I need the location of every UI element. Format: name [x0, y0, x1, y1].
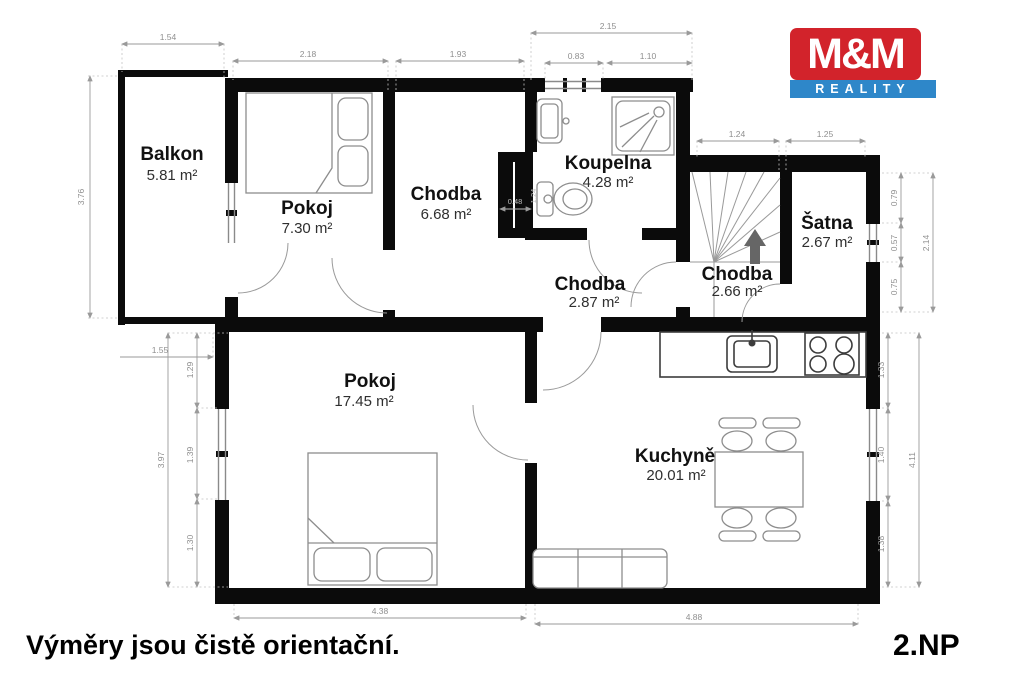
dim-kuchyne-width: 4.88 [686, 612, 703, 622]
dim-pokoj2-h3: 1.30 [185, 534, 195, 551]
room-name-chodba1: Chodba [411, 184, 482, 205]
dim-koupelna-total-width: 2.15 [600, 21, 617, 31]
room-area-koupelna: 4.28 m² [583, 174, 634, 191]
bed-small-icon [246, 93, 372, 193]
dim-satna-h2: 0.57 [889, 234, 899, 251]
dim-satna-total-height: 2.14 [921, 234, 931, 251]
room-area-satna: 2.67 m² [802, 234, 853, 251]
room-name-koupelna: Koupelna [565, 153, 652, 174]
sofa-icon [533, 549, 667, 588]
bathroom-sink-icon [537, 99, 569, 143]
room-name-balkon: Balkon [140, 144, 203, 165]
kitchen-counter-icon [660, 330, 866, 377]
disclaimer-text: Výměry jsou čistě orientační. [26, 630, 400, 661]
room-name-pokoj1: Pokoj [281, 198, 333, 219]
dim-pokoj2-h1: 1.29 [185, 361, 195, 378]
dim-pokoj2-total-height: 3.97 [156, 451, 166, 468]
logo-mm-text: M&M [807, 30, 904, 79]
dim-pokoj1-width: 2.18 [300, 49, 317, 59]
dim-kuchyne-total-height: 4.11 [907, 452, 917, 468]
floorplan-page: Balkon 5.81 m² Pokoj 7.30 m² Chodba 6.68… [0, 0, 1024, 683]
dim-satna-h3: 0.75 [889, 278, 899, 295]
room-name-kuchyne: Kuchyně [635, 446, 715, 467]
room-area-chodba1: 6.68 m² [421, 206, 472, 223]
room-area-chodba3: 2.66 m² [712, 283, 763, 300]
room-name-chodba3: Chodba [702, 264, 773, 285]
room-area-pokoj2: 17.45 m² [334, 393, 393, 410]
dim-balkon-width: 1.54 [160, 32, 177, 42]
room-area-balkon: 5.81 m² [147, 167, 198, 184]
dim-chodba1-width: 1.93 [450, 49, 467, 59]
room-name-pokoj2: Pokoj [344, 371, 396, 392]
dim-sachta-width: 0.48 [508, 197, 523, 206]
mm-reality-logo: M&M REALITY [790, 28, 936, 98]
room-area-kuchyne: 20.01 m² [646, 467, 705, 484]
dining-table-icon [715, 418, 803, 541]
dim-kuchyne-h2: 1.40 [876, 446, 886, 463]
dim-schodiste-width: 1.24 [729, 129, 746, 139]
dim-balkon-height: 3.76 [76, 188, 86, 205]
logo-reality-bar: REALITY [790, 80, 936, 98]
floor-label: 2.NP [893, 629, 960, 663]
logo-reality-text: REALITY [815, 82, 910, 96]
dim-koupelna-w1: 0.83 [568, 51, 585, 61]
dim-koupelna-w2: 1.10 [640, 51, 657, 61]
floorplan-drawing: Balkon 5.81 m² Pokoj 7.30 m² Chodba 6.68… [0, 0, 1024, 683]
dim-satna-width: 1.25 [817, 129, 834, 139]
room-name-satna: Šatna [801, 212, 853, 234]
room-area-pokoj1: 7.30 m² [282, 220, 333, 237]
room-name-chodba2: Chodba [555, 274, 626, 295]
dim-kuchyne-h3: 1.38 [876, 535, 886, 552]
shower-icon [612, 97, 674, 155]
dim-sachta-height: 1.24 [529, 189, 538, 204]
room-area-chodba2: 2.87 m² [569, 294, 620, 311]
dim-kuchyne-h1: 1.33 [876, 361, 886, 378]
dim-pokoj2-offset: 1.55 [152, 345, 169, 355]
dim-pokoj2-h2: 1.39 [185, 446, 195, 463]
dim-pokoj2-width: 4.38 [372, 606, 389, 616]
bed-large-icon [308, 453, 437, 585]
dim-satna-h1: 0.79 [889, 189, 899, 206]
logo-mm-box: M&M [790, 28, 921, 80]
